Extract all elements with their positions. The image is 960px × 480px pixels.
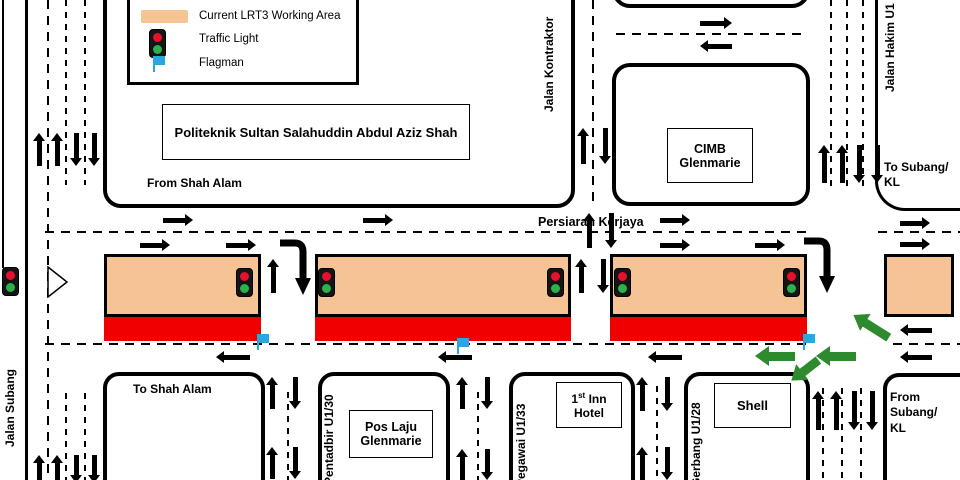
arrow-turn-right-down bbox=[280, 236, 314, 296]
flagman-flag-icon bbox=[152, 56, 166, 73]
traffic-light-icon bbox=[149, 29, 166, 58]
lane-divider bbox=[47, 0, 49, 480]
gerbang-label: Gerbang U1/28 bbox=[688, 402, 705, 480]
arrow-right bbox=[900, 217, 930, 230]
arrow-down bbox=[88, 133, 101, 166]
lane-divider bbox=[893, 343, 960, 345]
arrow-down bbox=[70, 455, 83, 480]
arrow-up bbox=[51, 455, 64, 480]
arrow-up bbox=[33, 133, 46, 166]
traffic-light-icon bbox=[783, 268, 800, 297]
arrow-up bbox=[818, 145, 831, 183]
arrow-up bbox=[266, 447, 279, 479]
arrow-right bbox=[700, 17, 732, 30]
arrow-right bbox=[755, 239, 785, 252]
arrow-down bbox=[289, 377, 302, 409]
arrow-down bbox=[88, 455, 101, 480]
arrow-right bbox=[900, 238, 930, 251]
working-area-3 bbox=[610, 254, 807, 317]
arrow-up bbox=[33, 455, 46, 480]
pentadbir-label: Pentadbir U1/30 bbox=[321, 394, 338, 480]
arrow-up bbox=[456, 449, 469, 480]
from-subang-kl-label: From Subang/ KL bbox=[890, 390, 937, 436]
arrow-up bbox=[636, 447, 649, 480]
cimb-label: CIMB Glenmarie bbox=[679, 142, 740, 170]
arrow-left bbox=[700, 40, 732, 53]
center-line bbox=[616, 33, 806, 35]
road-edge bbox=[2, 0, 4, 268]
legend: Current LRT3 Working Area Traffic Light … bbox=[127, 0, 359, 85]
arrow-down bbox=[289, 447, 302, 479]
arrow-left bbox=[900, 324, 932, 337]
lane-closure-1 bbox=[104, 317, 261, 341]
lane-divider bbox=[84, 0, 86, 185]
traffic-light-icon bbox=[236, 268, 253, 297]
traffic-light-icon bbox=[2, 267, 19, 296]
lane-closure-3 bbox=[610, 317, 807, 341]
jalan-subang-label: Jalan Subang bbox=[2, 369, 19, 447]
arrow-down bbox=[481, 449, 494, 480]
arrow-left bbox=[648, 351, 682, 364]
arrow-down bbox=[599, 128, 612, 164]
arrow-down bbox=[597, 259, 610, 293]
flagman-flag-icon bbox=[802, 334, 816, 351]
arrow-up bbox=[636, 377, 649, 411]
lane-divider bbox=[592, 0, 594, 205]
arrow-up bbox=[577, 128, 590, 164]
arrow-right bbox=[226, 239, 256, 252]
pos-laju-label: Pos Laju Glenmarie bbox=[360, 420, 421, 448]
arrow-left bbox=[216, 351, 250, 364]
arrow-up bbox=[575, 259, 588, 293]
jalan-kontraktor-label: Jalan Kontraktor bbox=[541, 17, 558, 112]
arrow-up bbox=[456, 377, 469, 409]
lane-divider bbox=[656, 386, 658, 480]
hotel-label-line2: Hotel bbox=[574, 406, 604, 420]
working-area-4 bbox=[884, 254, 954, 317]
traffic-light-icon bbox=[614, 268, 631, 297]
arrow-up bbox=[51, 133, 64, 166]
persiaran-kerjaya-label: Persiaran Kerjaya bbox=[538, 214, 644, 230]
green-detour-arrow-left bbox=[755, 346, 795, 367]
to-shah-alam-label: To Shah Alam bbox=[133, 382, 212, 397]
road-edge bbox=[25, 0, 28, 480]
arrow-down bbox=[848, 391, 861, 430]
lane-closure-2 bbox=[315, 317, 571, 341]
center-line bbox=[45, 231, 808, 233]
legend-label: Current LRT3 Working Area bbox=[199, 10, 340, 22]
flagman-flag-icon bbox=[256, 334, 270, 351]
arrow-up bbox=[836, 145, 849, 183]
arrow-right bbox=[163, 214, 193, 227]
arrow-up bbox=[266, 377, 279, 409]
lane-divider bbox=[65, 393, 67, 480]
lane-divider bbox=[45, 343, 806, 345]
arrow-right bbox=[660, 214, 690, 227]
pegawai-label: Pegawai U1/33 bbox=[513, 404, 530, 480]
arrow-down bbox=[871, 145, 884, 183]
arrow-down bbox=[661, 447, 674, 480]
working-area-2 bbox=[315, 254, 571, 317]
hotel-label-box: 1st Inn Hotel bbox=[556, 382, 622, 428]
top-right-block bbox=[612, 0, 810, 8]
flagman-flag-icon bbox=[456, 338, 470, 355]
shell-label-box: Shell bbox=[714, 383, 791, 428]
arrow-up bbox=[812, 391, 825, 430]
working-area-swatch bbox=[141, 10, 188, 23]
from-shah-alam-label: From Shah Alam bbox=[147, 176, 242, 191]
arrow-up bbox=[830, 391, 843, 430]
pos-laju-label-box: Pos Laju Glenmarie bbox=[349, 410, 433, 458]
arrow-right bbox=[660, 239, 690, 252]
jalan-hakim-label: Jalan Hakim U1 bbox=[882, 3, 899, 92]
hotel-label-line1: 1st Inn bbox=[571, 391, 606, 406]
to-subang-kl-label: To Subang/ KL bbox=[884, 160, 948, 191]
lane-divider bbox=[65, 0, 67, 185]
traffic-light-icon bbox=[318, 268, 335, 297]
arrow-up bbox=[267, 259, 280, 293]
arrow-right bbox=[363, 214, 393, 227]
arrow-down bbox=[70, 133, 83, 166]
arrow-down bbox=[661, 377, 674, 411]
arrow-down bbox=[866, 391, 879, 430]
shell-label: Shell bbox=[737, 398, 768, 413]
legend-label: Flagman bbox=[199, 57, 244, 69]
center-line bbox=[878, 231, 960, 233]
cimb-label-box: CIMB Glenmarie bbox=[667, 128, 753, 183]
politeknik-label-box: Politeknik Sultan Salahuddin Abdul Aziz … bbox=[162, 104, 470, 160]
arrow-turn-right-down bbox=[804, 234, 838, 294]
politeknik-label: Politeknik Sultan Salahuddin Abdul Aziz … bbox=[175, 125, 458, 140]
lane-divider bbox=[477, 392, 479, 480]
traffic-light-icon bbox=[547, 268, 564, 297]
lrt3-traffic-management-diagram: Politeknik Sultan Salahuddin Abdul Aziz … bbox=[0, 0, 960, 480]
yield-triangle-icon bbox=[47, 266, 69, 298]
lane-divider bbox=[84, 393, 86, 480]
arrow-down bbox=[853, 145, 866, 183]
arrow-right bbox=[140, 239, 170, 252]
arrow-left bbox=[900, 351, 932, 364]
arrow-down bbox=[481, 377, 494, 409]
legend-label: Traffic Light bbox=[199, 33, 258, 45]
